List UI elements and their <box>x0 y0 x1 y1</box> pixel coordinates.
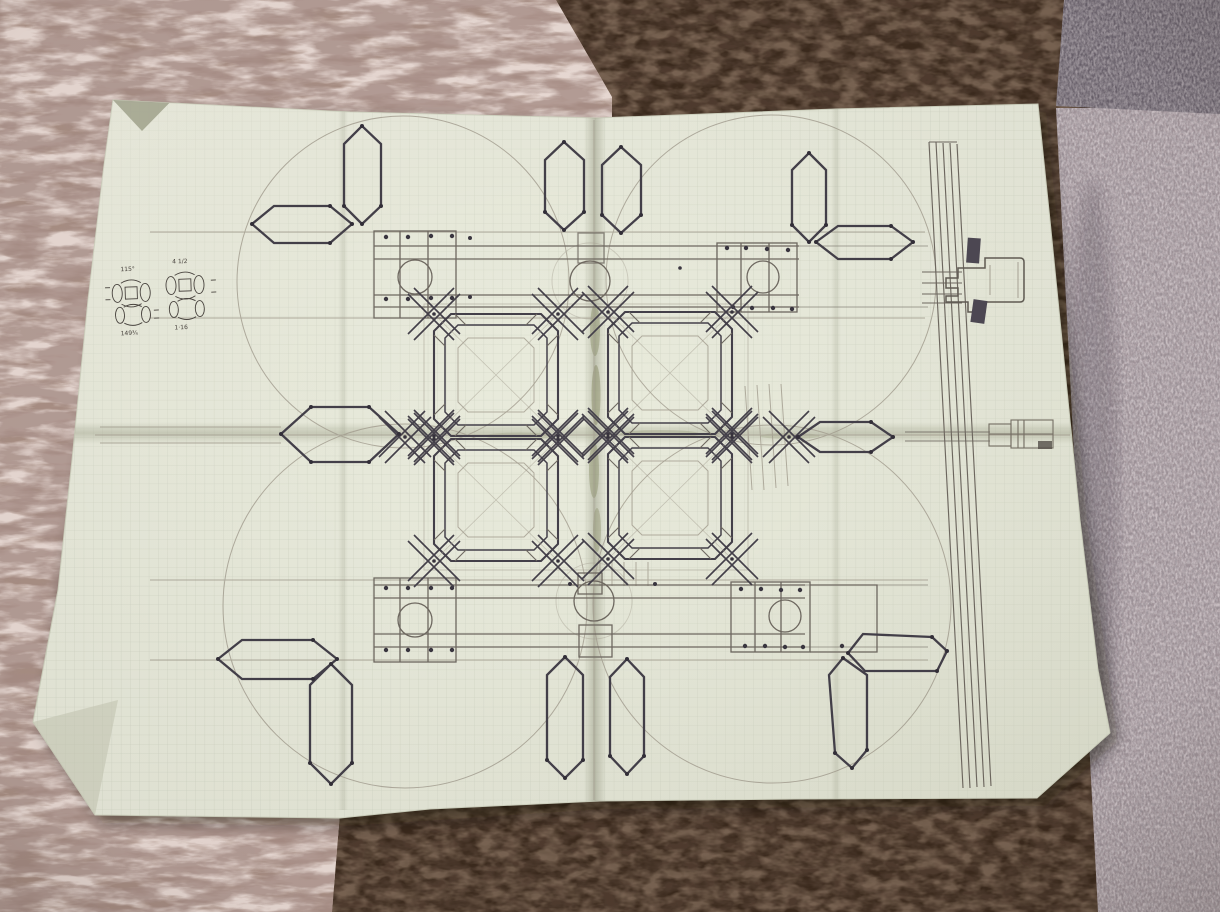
photo-canvas: 115° 4 1/2 149¾ 1·16 <box>0 0 1220 912</box>
photo: 115° 4 1/2 149¾ 1·16 <box>0 0 1220 912</box>
photo-vignette <box>0 0 1220 912</box>
